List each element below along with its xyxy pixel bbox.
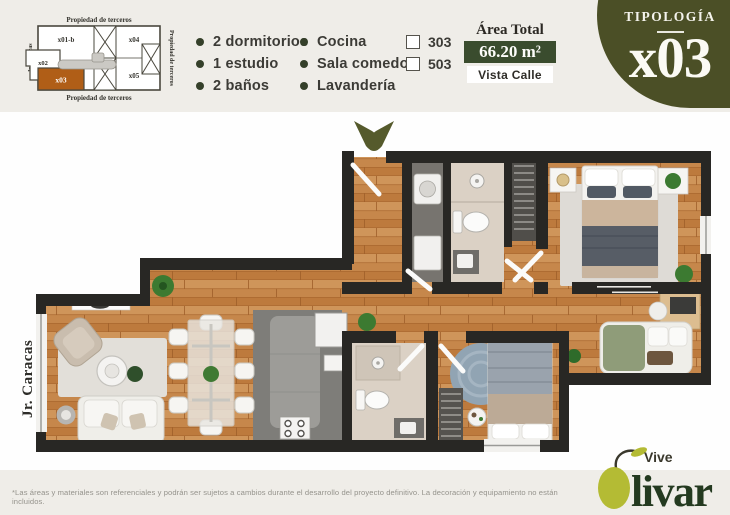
bedside-table xyxy=(468,408,486,426)
nightstand-plant xyxy=(665,173,681,189)
feature-kitchen: Cocina xyxy=(300,34,367,50)
master-bed xyxy=(582,166,658,278)
checkbox-icon[interactable] xyxy=(406,35,420,49)
keyplan-unit-x02-label: x02 xyxy=(38,60,48,67)
logo-name: livar xyxy=(631,467,712,512)
area-total-value: 66.20 m² xyxy=(464,41,556,63)
street-label: Jr. Caracas xyxy=(20,326,37,418)
feature-laundry: Lavandería xyxy=(300,78,396,94)
logo-tagline: Vive xyxy=(644,449,673,465)
floor-plan xyxy=(36,124,711,460)
checkbox-icon[interactable] xyxy=(406,57,420,71)
feature-label: Lavandería xyxy=(317,78,396,94)
closet2 xyxy=(439,388,463,440)
keyplan-minimap: Propiedad de terceros Propiedad de terce… xyxy=(12,10,184,108)
feature-label: Sala comedor xyxy=(317,56,415,72)
feature-label: 2 baños xyxy=(213,78,269,94)
plant-bowl xyxy=(127,366,143,382)
keyplan-bottom-label: Propiedad de terceros xyxy=(66,94,132,102)
feature-label: 2 dormitorios xyxy=(213,34,308,50)
bullet-icon xyxy=(300,60,308,68)
bullet-icon xyxy=(196,82,204,90)
study-sofa xyxy=(600,322,692,374)
floor-checkbox-row-303: 303 xyxy=(406,34,451,50)
feature-bathrooms: 2 baños xyxy=(196,78,269,94)
bed2 xyxy=(488,338,552,448)
kitchen-sink xyxy=(324,355,343,371)
keyplan-unit-x01b-label: x01-b xyxy=(58,36,75,44)
typology-label: TIPOLOGÍA xyxy=(620,9,720,25)
keyplan-unit-x04-label: x04 xyxy=(129,36,140,44)
floor-checkbox-row-503: 503 xyxy=(406,56,451,72)
sofa xyxy=(78,396,164,444)
feature-label: 1 estudio xyxy=(213,56,278,72)
floor-label: 303 xyxy=(428,34,451,50)
area-total-label: Área Total xyxy=(452,22,568,39)
olive-o-icon xyxy=(598,467,630,509)
master-closet xyxy=(512,159,536,241)
disclaimer-text: *Las áreas y materiales son referenciale… xyxy=(12,488,572,506)
hall-plant xyxy=(358,313,376,331)
bullet-icon xyxy=(196,38,204,46)
keyplan-right-label: Propiedad de terceros xyxy=(168,30,174,87)
bedroom-plant xyxy=(675,265,693,283)
keyplan-unit-x03-label: x03 xyxy=(55,76,67,85)
bullet-icon xyxy=(300,82,308,90)
keyplan-unit-x05-label: x05 xyxy=(129,72,140,80)
feature-bedrooms: 2 dormitorios xyxy=(196,34,308,50)
stove xyxy=(280,417,310,439)
typology-code: x03 xyxy=(612,28,728,91)
floor-label: 503 xyxy=(428,56,451,72)
master-bedroom-furniture xyxy=(550,166,693,286)
table-plant xyxy=(203,366,219,382)
feature-study: 1 estudio xyxy=(196,56,278,72)
feature-livingroom: Sala comedor xyxy=(300,56,415,72)
view-badge: Vista Calle xyxy=(467,66,553,83)
keyplan-top-label: Propiedad de terceros xyxy=(66,16,132,24)
toilet xyxy=(453,211,489,233)
study-plant xyxy=(567,349,581,363)
brochure-page: Propiedad de terceros Propiedad de terce… xyxy=(0,0,730,515)
vive-olivar-logo: Vive livar xyxy=(594,442,726,512)
kitchen-counters xyxy=(253,310,347,442)
bullet-icon xyxy=(300,38,308,46)
feature-label: Cocina xyxy=(317,34,367,50)
toilet2 xyxy=(356,390,389,410)
bullet-icon xyxy=(196,60,204,68)
keyplan-corridor xyxy=(58,60,116,69)
